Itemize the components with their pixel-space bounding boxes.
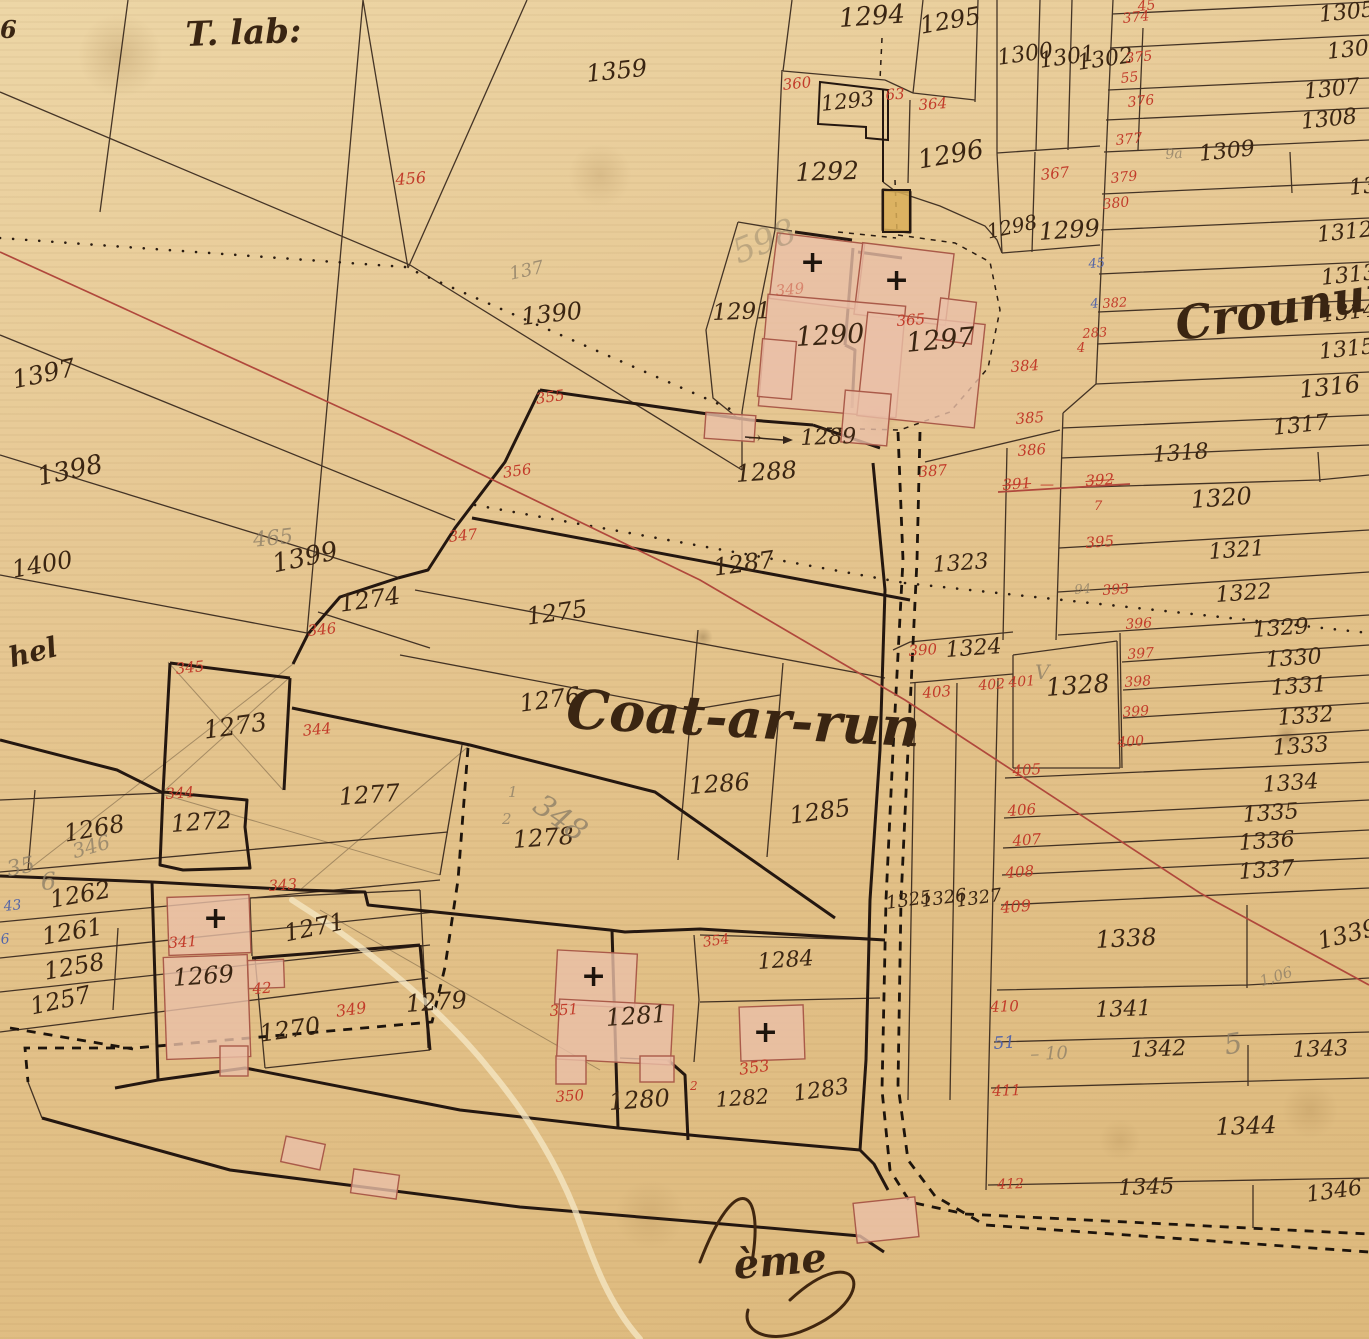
parcel-number-label: 385: [1015, 410, 1045, 427]
parcel-number-label: 465: [252, 526, 294, 551]
parcel-number-label: 1315: [1318, 336, 1369, 364]
parcel-number-label: 1341: [1095, 998, 1152, 1022]
parcel-number-label: 94: [1074, 583, 1091, 597]
parcel-number-label: 1293: [820, 88, 875, 114]
parcel-number-label: 1322: [1215, 581, 1272, 607]
parcel-number-label: 1292: [795, 158, 859, 185]
parcel-number-label: 1308: [1300, 106, 1358, 134]
parcel-number-label: 349: [775, 281, 805, 299]
parcel-number-label: 407: [1012, 832, 1042, 849]
parcel-number-label: 409: [1000, 898, 1032, 916]
parcel-number-label: 35: [5, 854, 37, 881]
building-cross-icon: +: [884, 266, 909, 296]
parcel-number-label: 1297: [905, 324, 976, 357]
parcel-number-label: —: [1040, 478, 1054, 492]
place-name-label: ème: [732, 1238, 828, 1286]
parcel-number-label: 406: [1007, 802, 1037, 819]
parcel-number-label: 360: [782, 75, 812, 93]
parcel-number-label: 402: [978, 677, 1006, 693]
parcel-number-label: 354: [702, 932, 730, 950]
parcel-number-label: 1311: [1348, 172, 1369, 200]
parcel-number-label: 391: [1002, 476, 1032, 493]
parcel-number-label: 379: [1110, 169, 1138, 186]
parcel-number-label: 396: [1125, 616, 1153, 632]
parcel-number-label: 382: [1102, 296, 1128, 311]
parcel-number-label: 1279: [405, 988, 468, 1016]
parcel-number-label: 1305: [1318, 0, 1369, 27]
parcel-number-label: 1: [508, 785, 518, 800]
parcel-number-label: 1331: [1270, 674, 1327, 700]
map-geometry: [0, 0, 1369, 1339]
parcel-number-label: 1280: [608, 1086, 671, 1114]
parcel-number-label: 344: [302, 721, 332, 739]
parcel-number-label: 399: [1122, 704, 1150, 720]
parcel-number-label: 400: [1117, 734, 1145, 750]
parcel-number-label: 1329: [1252, 616, 1309, 642]
building-cross-icon: +: [203, 904, 228, 934]
parcel-number-label: 365: [896, 312, 926, 329]
parcel-number-label: 353: [738, 1058, 770, 1078]
place-name-label: T. lab:: [185, 14, 302, 52]
parcel-number-label: 408: [1005, 864, 1035, 881]
parcel-number-label: 1307: [1303, 76, 1361, 104]
parcel-number-label: V: [1035, 662, 1049, 682]
parcel-number-label: 411: [992, 1083, 1021, 1099]
parcel-number-label: 283: [1082, 326, 1108, 341]
parcel-number-label: 9a: [1165, 147, 1183, 162]
parcel-number-label: 1334: [1262, 771, 1319, 797]
parcel-number-label: 1390: [520, 299, 583, 329]
parcel-number-label: 43: [3, 898, 22, 914]
parcel-number-label: 1290: [795, 320, 865, 351]
parcel-number-label: 364: [918, 96, 948, 113]
parcel-number-label: 2: [690, 1080, 698, 1092]
parcel-number-label: 1337: [1238, 858, 1295, 884]
parcel-number-label: 405: [1012, 762, 1042, 779]
building-cross-icon: +: [753, 1018, 778, 1048]
parcel-number-label: 349: [335, 1000, 367, 1020]
parcel-number-label: 1294: [838, 1, 906, 32]
parcel-number-label: 347: [448, 527, 478, 545]
parcel-number-label: 1286: [688, 770, 751, 798]
parcel-number-label: 392: [1085, 472, 1115, 489]
parcel-number-label: 398: [1124, 674, 1152, 690]
parcel-number-label: 55: [1120, 70, 1139, 86]
parcel-number-label: 1289: [800, 426, 857, 450]
barn-building: [883, 190, 910, 232]
footpath-dotted: [0, 238, 1369, 633]
parcel-number-label: 410: [990, 999, 1019, 1015]
parcel-number-label: 45: [1088, 257, 1105, 271]
parcel-number-label: 346: [307, 621, 337, 639]
parcel-number-label: 4: [1077, 342, 1085, 355]
parcel-number-label: 367: [1040, 165, 1070, 183]
parcel-number-label: 63: [885, 87, 905, 103]
parcel-number-label: 1312: [1316, 219, 1369, 247]
parcel-number-label: 393: [1102, 582, 1130, 598]
parcel-number-label: 390: [908, 642, 938, 659]
parcel-number-label: 2: [502, 812, 512, 827]
parcel-number-label: 7: [1094, 500, 1102, 513]
parcel-number-label: 341: [168, 934, 198, 951]
parcel-number-label: 412: [997, 1177, 1024, 1192]
parcel-number-label: 343: [268, 877, 298, 894]
parcel-number-label: 384: [1010, 358, 1040, 375]
parcel-number-label: 395: [1085, 534, 1115, 551]
parcel-number-label: 1282: [715, 1086, 770, 1111]
parcel-number-label: 351: [549, 1002, 579, 1019]
parcel-number-label: 1332: [1277, 704, 1334, 730]
parcel-number-label: 380: [1102, 195, 1130, 212]
parcel-number-label: 6: [0, 932, 10, 947]
parcel-number-label: 397: [1127, 646, 1155, 662]
parcel-number-label: →: [748, 430, 761, 446]
parcel-number-label: 1284: [757, 948, 814, 974]
parcel-number-label: 1309: [1198, 138, 1256, 166]
parcel-number-label: 374: [1122, 9, 1150, 26]
parcel-number-label: 355: [535, 388, 565, 407]
parcel-number-label: 1318: [1152, 441, 1209, 467]
parcel-number-label: 1359: [585, 56, 648, 86]
parcel-number-label: 1323: [932, 551, 989, 577]
parcel-number-label: 1288: [735, 458, 798, 486]
parcel-number-label: 1333: [1272, 734, 1329, 760]
parcel-number-label: 1330: [1265, 646, 1322, 672]
building-cross-icon: +: [800, 248, 825, 278]
parcel-number-label: 1306: [1326, 36, 1369, 64]
parcel-number-label: 1316: [1298, 372, 1361, 402]
parcel-number-label: 1291: [712, 300, 771, 325]
parcel-number-label: 1321: [1208, 538, 1265, 564]
parcel-number-label: 1269: [172, 962, 235, 990]
parcel-number-label: – 10: [1030, 1045, 1068, 1064]
parcel-number-label: 1342: [1130, 1038, 1187, 1062]
parcel-number-label: 1277: [338, 781, 401, 809]
parcel-number-label: 1281: [605, 1002, 668, 1030]
place-name-label: 6: [0, 18, 17, 42]
parcel-number-label: 377: [1115, 131, 1143, 148]
road-dashed: [10, 432, 1369, 1252]
parcel-number-label: 350: [555, 1088, 585, 1105]
parcel-number-label: 375: [1125, 49, 1153, 66]
parcel-number-label: 6: [40, 869, 57, 894]
parcel-number-label: 1344: [1215, 1113, 1277, 1139]
parcel-number-label: 344: [165, 785, 195, 802]
parcel-number-label: 456: [395, 170, 427, 188]
red-survey-line: [0, 252, 1369, 985]
parcel-number-label: 1343: [1292, 1038, 1349, 1062]
parcel-number-label: 376: [1127, 93, 1155, 110]
parcel-number-label: 1317: [1272, 412, 1330, 440]
parcel-number-label: 1336: [1238, 829, 1295, 855]
parcel-number-label: 1345: [1118, 1176, 1175, 1200]
parcel-number-label: 4: [1090, 297, 1099, 311]
parcel-number-label: 1272: [170, 808, 233, 836]
building-cross-icon: +: [581, 962, 606, 992]
parcel-number-label: 403: [922, 684, 952, 701]
place-name-label: Coat-ar-run: [565, 682, 922, 754]
parcel-number-label: 1335: [1242, 801, 1299, 827]
parcel-number-label: 1320: [1190, 484, 1253, 512]
parcel-number-label: 1324: [945, 636, 1002, 662]
parcel-number-label: 386: [1017, 442, 1047, 459]
parcel-number-label: 387: [918, 463, 948, 480]
parcel-number-label: 1328: [1045, 671, 1110, 700]
parcel-number-label: 356: [502, 462, 532, 481]
cadastral-map: 1294129512931292129613001301130213051306…: [0, 0, 1369, 1339]
parcel-number-label: 42: [252, 981, 272, 997]
parcel-number-label: 51: [993, 1034, 1016, 1052]
parcel-number-label: 345: [175, 659, 205, 677]
parcel-number-label: 1338: [1095, 925, 1157, 952]
parcel-number-label: 401: [1008, 674, 1036, 690]
parcel-number-label: 1299: [1038, 216, 1101, 244]
